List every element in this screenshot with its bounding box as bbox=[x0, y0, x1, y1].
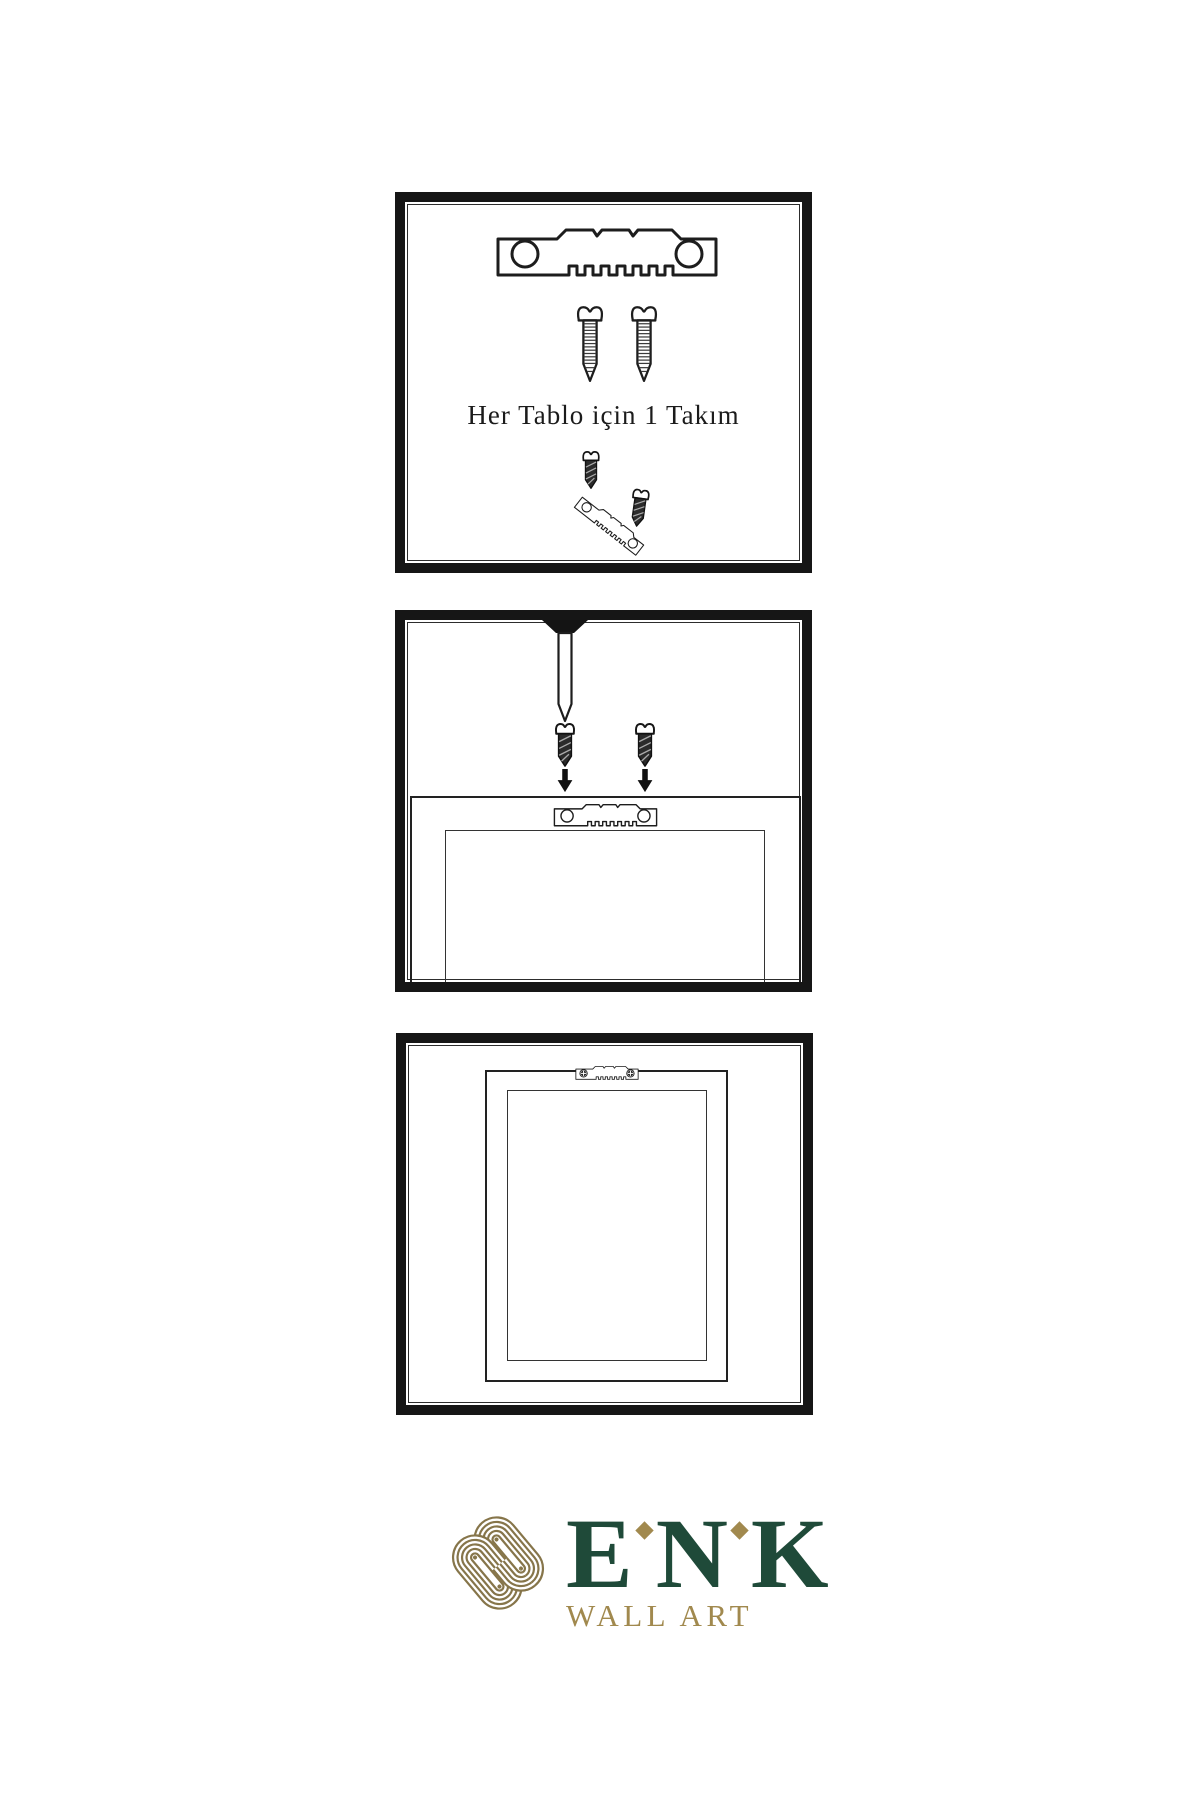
nail-icon bbox=[541, 620, 589, 724]
dark-screw-icon bbox=[552, 723, 578, 768]
hung-frame-inner-outline bbox=[507, 1090, 707, 1361]
screw-into-hanger-assembly-icon bbox=[500, 445, 670, 565]
dark-screw-icon bbox=[632, 723, 658, 768]
arrow-down-icon bbox=[556, 769, 574, 793]
frame-back-inner-outline bbox=[445, 830, 765, 992]
sawtooth-hanger-with-screws-icon bbox=[575, 1064, 639, 1081]
diamond-icon bbox=[730, 1521, 748, 1539]
knot-logo-icon bbox=[442, 1502, 554, 1626]
brand-lockup: E N K WALL ART bbox=[566, 1504, 829, 1634]
panel-hanging-result bbox=[396, 1033, 813, 1415]
diamond-icon bbox=[635, 1521, 653, 1539]
sawtooth-hanger-icon bbox=[553, 801, 658, 828]
sawtooth-hanger-icon bbox=[495, 223, 719, 279]
panel-hardware-kit: Her Tablo için 1 Takım bbox=[395, 192, 812, 573]
arrow-down-icon bbox=[636, 769, 654, 793]
kit-caption: Her Tablo için 1 Takım bbox=[405, 400, 802, 431]
panel-mounting-step bbox=[395, 610, 812, 992]
screw-icon bbox=[573, 303, 607, 387]
brand-letter: E bbox=[566, 1504, 633, 1604]
brand-letter: N bbox=[656, 1504, 728, 1604]
screw-icon bbox=[627, 303, 661, 387]
instruction-sheet: Her Tablo için 1 Takım bbox=[0, 0, 1200, 1800]
brand-name: E N K bbox=[566, 1504, 829, 1604]
brand-letter: K bbox=[751, 1504, 829, 1604]
